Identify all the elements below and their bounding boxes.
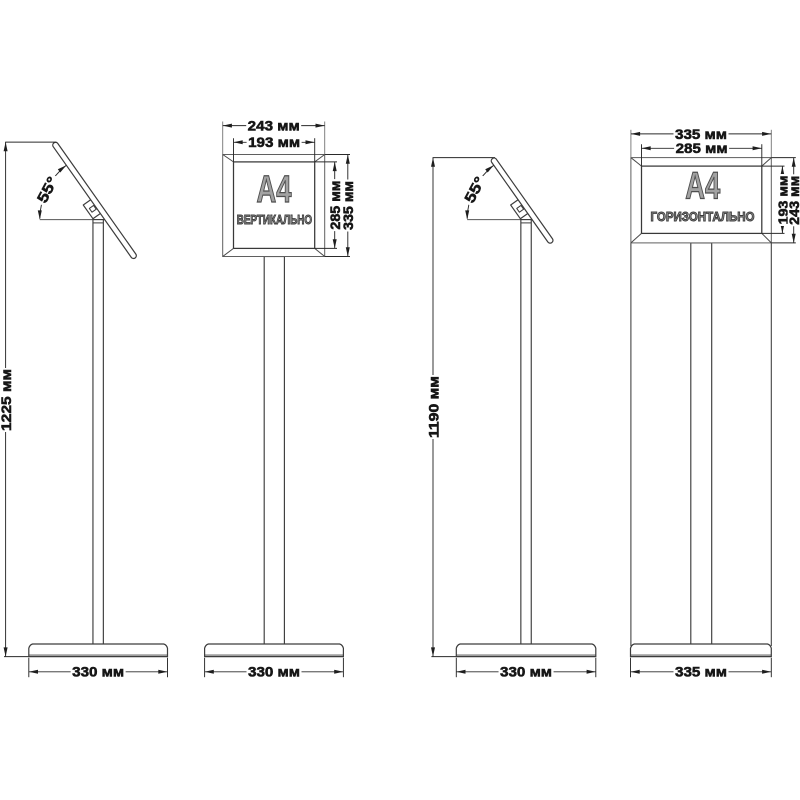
svg-text:243 мм: 243 мм [248, 119, 300, 134]
svg-text:1190 мм: 1190 мм [426, 376, 441, 438]
svg-text:330 мм: 330 мм [72, 665, 124, 680]
svg-text:193 мм: 193 мм [248, 135, 300, 150]
svg-text:335 мм: 335 мм [341, 181, 356, 230]
svg-text:330 мм: 330 мм [500, 665, 552, 680]
svg-text:335 мм: 335 мм [675, 665, 727, 680]
svg-text:243 мм: 243 мм [787, 176, 800, 225]
svg-text:1225 мм: 1225 мм [0, 369, 14, 431]
svg-text:ВЕРТИКАЛЬНО: ВЕРТИКАЛЬНО [237, 212, 312, 227]
svg-text:330 мм: 330 мм [248, 665, 300, 680]
svg-text:285 мм: 285 мм [676, 141, 728, 156]
svg-text:A4: A4 [257, 169, 292, 211]
svg-text:335 мм: 335 мм [675, 127, 727, 142]
svg-text:A4: A4 [685, 166, 720, 208]
svg-text:ГОРИЗОНТАЛЬНО: ГОРИЗОНТАЛЬНО [651, 209, 755, 224]
